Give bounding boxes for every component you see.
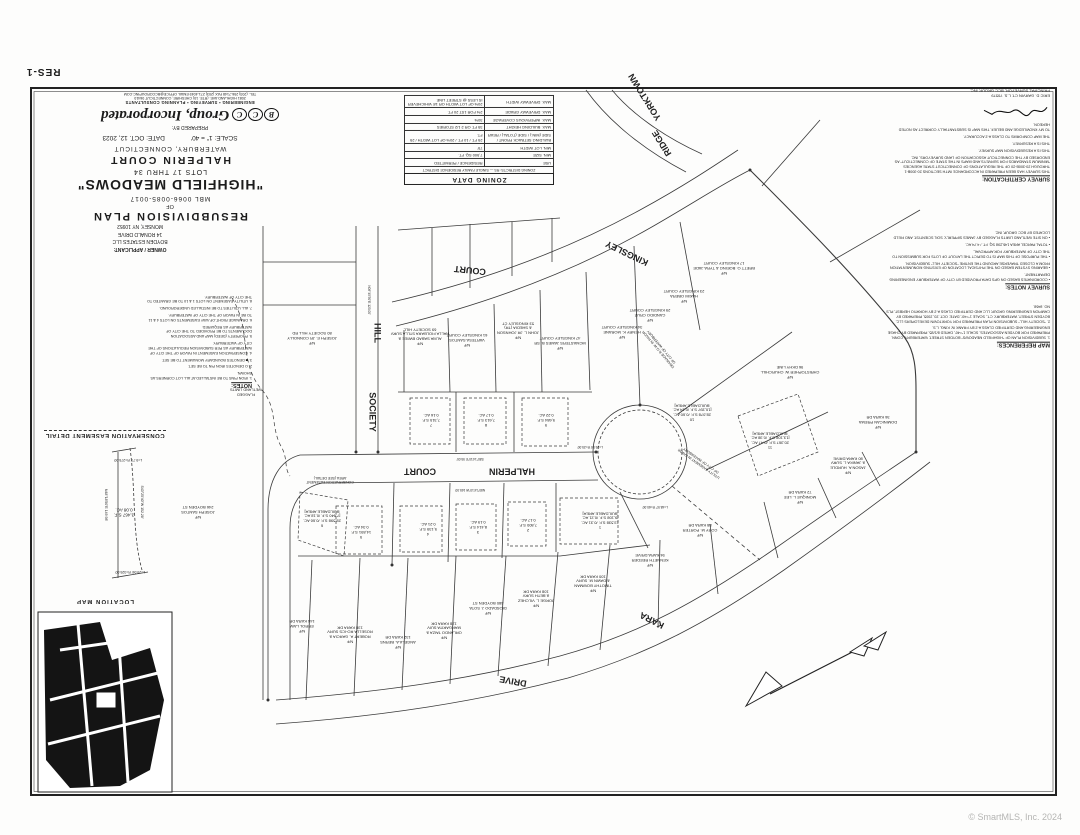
map-label: HILL [372, 323, 383, 343]
map-label: N/F ALMA SABAD BWIEE & HALLA FIOLBARA ST… [391, 326, 449, 345]
map-label: N/F CORY M. PORTER 88 KARA DR [683, 523, 718, 537]
map-label: N/F BRETT O. BOEING & TYRA JADE 17 KINGS… [693, 261, 755, 275]
map-label: N/F HENRY K. MORANE 34 KINGSLEY COURT [602, 325, 643, 339]
map-label: 3 8,414 S.F. 0.19 AC. [469, 520, 487, 534]
map-label: N48°18'50"E 149.98' [104, 489, 108, 521]
map-label: N/F JORGE L. VILCHEZ & BETH SURV 108 KAR… [518, 588, 554, 607]
map-label: N/F ORLANDO TAIZA & MARGARITA SUIV 128 K… [426, 620, 461, 639]
map-label: N/F JOHN L. JR JOHNSON & SHEDIA (TR) 53 … [497, 320, 539, 339]
map-label: N/F JOSEPH E. JR CONNOLLY 80 SOCIETY HIL… [287, 331, 337, 345]
map-label: CONSERVATION EASEMENT AREA (SEE DETAIL) [306, 476, 354, 484]
map-label: N/F ERROL LAW 144 KARA DR [289, 619, 314, 633]
map-label: N/F HAKIM OBERA 23 KINGSLEY COURT [664, 289, 705, 303]
map-label: N/F CHRISTOPHER W. CHURCHILL 96 DKHY LIN… [761, 365, 820, 379]
map-label: 7 7,315 S.F. 0.16 AC. [422, 413, 440, 427]
map-label: FLAGGED WETLAND LIMITS [230, 387, 262, 396]
map-label: 10 28,078 S.F. /0.60 AC. [10,397 S.F. /0… [673, 402, 712, 421]
map-label: 8 7,613 S.F. 0.17 AC. [477, 413, 495, 427]
map-labels-layer: HILLSOCIETYCOURTKINGSLEYYORKTOWNRIDGEHAL… [0, 0, 1080, 835]
copyright-watermark: © SmartMLS, Inc. 2024 [968, 812, 1062, 822]
map-label: N/F MCMASTERS JAMES B. SR 47 KINGSLEY CO… [534, 336, 586, 350]
map-label: L=29.06' R=325.00' [115, 570, 145, 574]
map-label: KINGSLEY [604, 238, 650, 268]
map-label: 9 9,684 S.F. 0.22 AC. [537, 413, 555, 427]
map-label: L=29.54' R=25.00' [577, 444, 603, 448]
map-label: L=48.97' R=60.00' [642, 504, 668, 508]
map-label: N/F VARTESA SANTOS 61 KINGSLEY COURT [447, 333, 488, 347]
map-label: N09°45'50"E 120.00' [366, 285, 370, 314]
map-label: N/F ANGELA A. BERNS 132 KARA DR [380, 635, 416, 649]
map-label: KARA [638, 609, 666, 630]
map-label: N80°14'10"W 165.00' [455, 487, 485, 491]
map-label: HALPERIN [489, 466, 535, 477]
map-label: YORKTOWN [626, 72, 663, 123]
map-label: 11 20,367 S.F. /0.47 AC. [13,108 S.F. /0… [751, 430, 790, 449]
map-label: COURT [404, 466, 436, 477]
map-label: UTILITY EASEMENT IN FAVOR OF CITY OF WAT… [677, 444, 723, 480]
map-label: 2 7,800 S.F. 0.17 AC. [519, 518, 537, 532]
map-label: N/F ROBERT A. GARCIA & ROSELLA RO-ICS SU… [327, 624, 373, 643]
map-label: 1 13,538 S.F. /0.31 AC. [9,108 S.F. /0.2… [581, 510, 619, 529]
map-label: N/F KENNETH REEDER 94 KARA DRIVE [632, 553, 669, 567]
map-label: SOCIETY [367, 392, 378, 432]
map-label: DRAINAGE R.O.W. IN FAVOR OF CITY OF WATE… [641, 327, 678, 369]
map-label: N/F CANDIDO CRUZ 29 KINGSLEY COURT [630, 308, 671, 322]
map-label: S43°25'40"W 152.28' [140, 486, 144, 519]
map-label: DRIVE [499, 673, 528, 688]
map-label: N/F TIMOTHY BOWMAN & DAWN M. SURV 100 KA… [574, 573, 611, 592]
map-label: N/F JASON A. HURDLE & JANIKA L. SURV 80 … [830, 455, 866, 474]
map-label: RIDGE [650, 128, 674, 158]
map-label: 4 9,139 S.F. 0.21 AC. [419, 522, 437, 536]
map-label: N/F MONIQUE L. LEE 72 KARA DR [784, 490, 816, 504]
map-label: COURT [454, 263, 487, 277]
map-label: N/F JOSEPH SANTOS 246 BOYDEN ST [181, 505, 215, 519]
map-label: L=9.77' R=275.00' [114, 458, 142, 462]
map-label: N/F DOMINICAN PREMA 36 KARA DR [859, 415, 897, 429]
map-label: 6 28,598 S.F. /0.66 AC. [7,840 S.F. /0.1… [303, 508, 341, 527]
survey-plan-sheet: RES-1 [0, 0, 1080, 835]
map-label: N/F DIOSDADO J. SOTA 480 BOYDEN ST [469, 601, 506, 615]
map-label: 3,467 S.F. 0.08 AC. [114, 507, 134, 518]
map-label: S80°14'10"E 95.00' [456, 456, 483, 460]
map-label: 5 14,891 S.F. 0.34 AC. [351, 525, 371, 539]
